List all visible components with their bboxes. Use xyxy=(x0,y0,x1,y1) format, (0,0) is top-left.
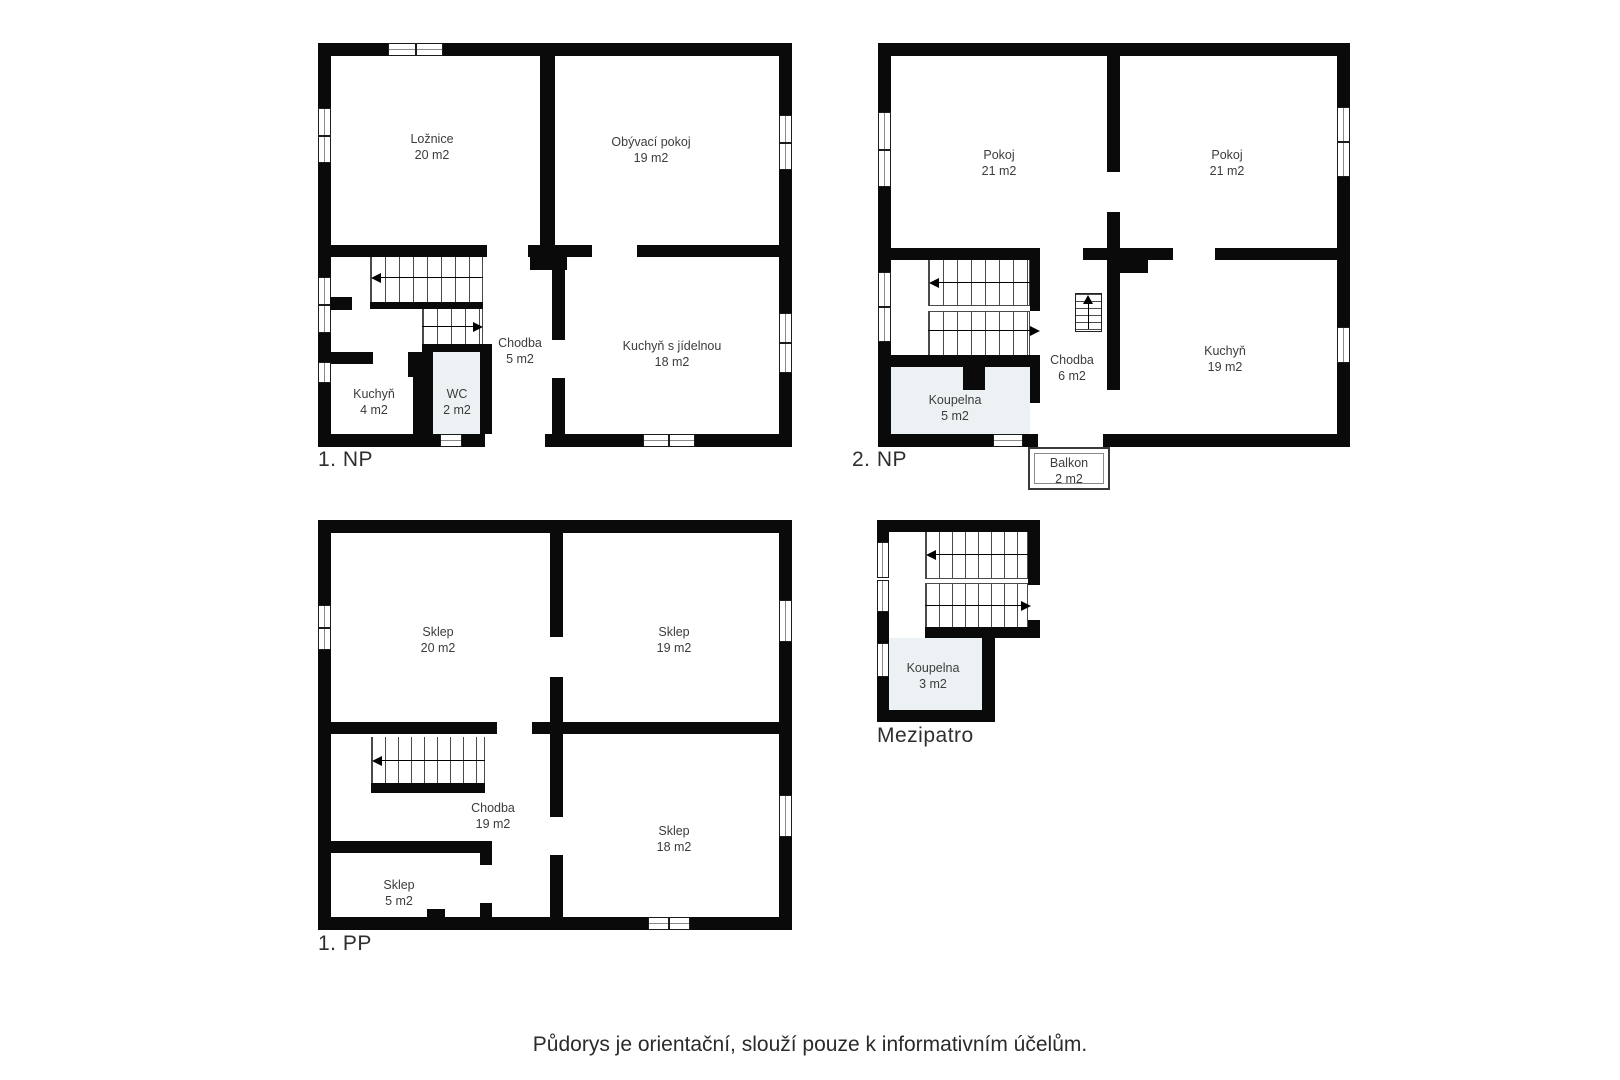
disclaimer-text: Půdorys je orientační, slouží pouze k in… xyxy=(0,1033,1620,1057)
wall xyxy=(331,245,487,257)
wall xyxy=(695,434,779,447)
room-name: Koupelna xyxy=(877,660,989,676)
wall xyxy=(330,297,352,310)
stair-direction-arrow xyxy=(1021,601,1031,611)
wall xyxy=(318,43,331,108)
wall xyxy=(1337,177,1350,327)
stair-direction-arrow xyxy=(929,278,939,288)
room-area: 2 m2 xyxy=(417,402,497,418)
room-name: Koupelna xyxy=(885,392,1025,408)
window xyxy=(643,434,695,447)
wall xyxy=(427,909,445,917)
room-name: Sklep xyxy=(594,823,754,839)
wall xyxy=(318,520,792,533)
wall xyxy=(480,841,492,865)
wall xyxy=(462,434,485,447)
floor-label-1pp: 1. PP xyxy=(318,932,372,956)
wall xyxy=(371,783,485,793)
room-area: 5 m2 xyxy=(885,408,1025,424)
staircase-upper-flight xyxy=(925,532,1028,578)
wall xyxy=(331,841,487,853)
room-name: Chodba xyxy=(413,800,573,816)
wall xyxy=(877,520,1040,532)
room-area: 2 m2 xyxy=(1009,471,1129,487)
window xyxy=(877,580,889,612)
room-label-balkon: Balkon 2 m2 xyxy=(1009,455,1129,487)
window xyxy=(648,917,690,930)
wall xyxy=(443,43,792,56)
room-label-chodba: Chodba 6 m2 xyxy=(1012,352,1132,384)
room-area: 20 m2 xyxy=(358,640,518,656)
wall xyxy=(1083,248,1173,260)
wall xyxy=(877,612,889,643)
room-label-sklep-20: Sklep 20 m2 xyxy=(358,624,518,656)
room-area: 21 m2 xyxy=(1147,163,1307,179)
room-label-pokoj-left: Pokoj 21 m2 xyxy=(919,147,1079,179)
wall xyxy=(963,367,985,390)
wall xyxy=(891,248,1040,260)
room-area: 6 m2 xyxy=(1012,368,1132,384)
room-label-kuchyn: Kuchyň 4 m2 xyxy=(324,386,424,418)
stair-walkline xyxy=(422,326,474,327)
room-label-sklep-5: Sklep 5 m2 xyxy=(329,877,469,909)
window xyxy=(779,600,792,642)
window xyxy=(877,542,889,578)
wall xyxy=(1215,248,1337,260)
room-label-koupelna: Koupelna 3 m2 xyxy=(877,660,989,692)
window xyxy=(388,43,443,56)
wall xyxy=(878,43,891,112)
window xyxy=(878,272,891,342)
wall xyxy=(1103,434,1350,447)
wall xyxy=(318,917,648,930)
window xyxy=(440,434,462,447)
wall xyxy=(532,722,550,734)
floor-plan-mezipatro: Koupelna 3 m2 xyxy=(877,520,1040,722)
wall xyxy=(1337,43,1350,107)
room-name: Balkon xyxy=(1009,455,1129,471)
room-label-pokoj-right: Pokoj 21 m2 xyxy=(1147,147,1307,179)
room-name: Obývací pokoj xyxy=(571,134,731,150)
stair-landing-line xyxy=(928,305,1030,306)
window xyxy=(779,795,792,837)
wall xyxy=(563,722,779,734)
staircase-lower-flight xyxy=(928,312,1030,355)
room-area: 20 m2 xyxy=(352,147,512,163)
window xyxy=(318,108,331,163)
wall xyxy=(779,43,792,115)
wall xyxy=(877,520,889,542)
wall xyxy=(318,520,331,605)
wall xyxy=(550,855,563,917)
room-name: Sklep xyxy=(358,624,518,640)
wall xyxy=(528,245,592,257)
room-area: 5 m2 xyxy=(329,893,469,909)
stair-direction-arrow xyxy=(1030,326,1040,336)
floor-label-mezipatro: Mezipatro xyxy=(877,724,974,748)
wall xyxy=(637,245,779,257)
wall xyxy=(877,710,995,722)
room-name: Sklep xyxy=(594,624,754,640)
room-label-koupelna: Koupelna 5 m2 xyxy=(885,392,1025,424)
wall xyxy=(408,352,433,377)
window xyxy=(993,434,1023,447)
room-label-chodba: Chodba 19 m2 xyxy=(413,800,573,832)
room-name: Kuchyň xyxy=(1145,343,1305,359)
stair-direction-arrow xyxy=(371,273,381,283)
wall xyxy=(480,903,492,917)
stair-walkline xyxy=(935,554,1028,555)
room-area: 3 m2 xyxy=(877,676,989,692)
window xyxy=(1337,107,1350,177)
room-area: 5 m2 xyxy=(440,351,600,367)
room-area: 19 m2 xyxy=(1145,359,1305,375)
room-name: Kuchyň s jídelnou xyxy=(592,338,752,354)
floor-plan-2np: Pokoj 21 m2 Pokoj 21 m2 Chodba 6 m2 Kuch… xyxy=(878,43,1350,513)
room-name: Sklep xyxy=(329,877,469,893)
room-label-loznice: Ložnice 20 m2 xyxy=(352,131,512,163)
stair-walkline xyxy=(925,605,1022,606)
room-label-obyvaci-pokoj: Obývací pokoj 19 m2 xyxy=(571,134,731,166)
wall xyxy=(540,56,555,245)
room-label-kuchyn-s-jidelnou: Kuchyň s jídelnou 18 m2 xyxy=(592,338,752,370)
window xyxy=(878,112,891,187)
staircase-upper-flight xyxy=(370,255,483,302)
window xyxy=(318,605,331,650)
stair-direction-arrow xyxy=(1083,295,1093,304)
wall xyxy=(878,43,1350,56)
wall xyxy=(552,378,565,434)
stair-walkline xyxy=(380,277,483,278)
floor-label-1np: 1. NP xyxy=(318,448,373,472)
wall xyxy=(779,642,792,795)
room-area: 4 m2 xyxy=(324,402,424,418)
window xyxy=(1337,327,1350,363)
room-name: Pokoj xyxy=(919,147,1079,163)
stair-walkline xyxy=(938,282,1030,283)
stair-direction-arrow xyxy=(372,756,382,766)
stair-walkline xyxy=(928,330,1031,331)
wall xyxy=(779,373,792,447)
room-name: Chodba xyxy=(1012,352,1132,368)
wall xyxy=(878,434,993,447)
room-name: Kuchyň xyxy=(324,386,424,402)
wall xyxy=(552,257,565,340)
room-name: Ložnice xyxy=(352,131,512,147)
room-area: 21 m2 xyxy=(919,163,1079,179)
wall xyxy=(878,187,891,272)
window xyxy=(318,362,331,383)
room-area: 19 m2 xyxy=(571,150,731,166)
wall xyxy=(545,434,643,447)
floor-plan-1pp: Sklep 20 m2 Sklep 19 m2 Chodba 19 m2 Skl… xyxy=(318,520,792,930)
room-area: 19 m2 xyxy=(413,816,573,832)
wall xyxy=(550,677,563,817)
room-label-kuchyn: Kuchyň 19 m2 xyxy=(1145,343,1305,375)
room-label-wc: WC 2 m2 xyxy=(417,386,497,418)
room-label-sklep-19: Sklep 19 m2 xyxy=(594,624,754,656)
stair-landing-line xyxy=(925,578,1028,579)
wall xyxy=(1030,248,1040,311)
wall xyxy=(550,533,563,637)
wall xyxy=(331,722,497,734)
room-label-sklep-18: Sklep 18 m2 xyxy=(594,823,754,855)
wall xyxy=(318,333,331,362)
wall xyxy=(318,163,331,277)
wall xyxy=(1023,434,1038,447)
floor-plan-1np: Ložnice 20 m2 Obývací pokoj 19 m2 Chodba… xyxy=(318,43,792,447)
room-name: Chodba xyxy=(440,335,600,351)
stair-direction-arrow xyxy=(473,322,483,332)
room-area: 18 m2 xyxy=(592,354,752,370)
room-name: Pokoj xyxy=(1147,147,1307,163)
stair-direction-arrow xyxy=(926,550,936,560)
window xyxy=(779,115,792,170)
wall xyxy=(690,917,792,930)
wall xyxy=(779,520,792,600)
attic-stair-walkline xyxy=(1088,302,1089,329)
wall xyxy=(1028,532,1040,585)
stair-walkline xyxy=(381,760,485,761)
wall xyxy=(331,352,373,364)
window xyxy=(779,313,792,373)
room-name: WC xyxy=(417,386,497,402)
wall xyxy=(779,170,792,313)
wall xyxy=(1107,56,1120,172)
wall xyxy=(318,434,440,447)
room-area: 19 m2 xyxy=(594,640,754,656)
floor-label-2np: 2. NP xyxy=(852,448,907,472)
room-label-chodba: Chodba 5 m2 xyxy=(440,335,600,367)
wall xyxy=(370,302,483,309)
room-area: 18 m2 xyxy=(594,839,754,855)
